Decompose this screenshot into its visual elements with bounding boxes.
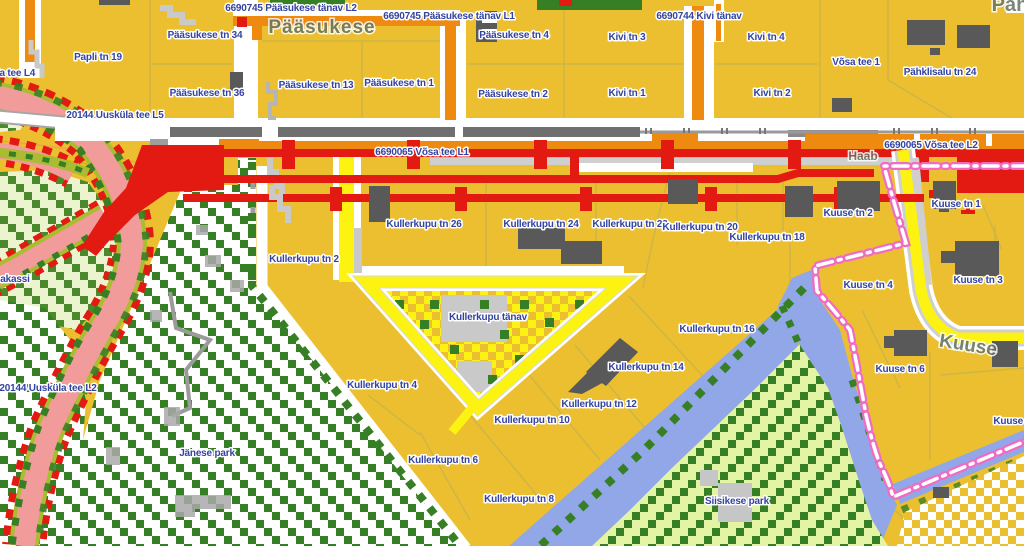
svg-text:Kullerkupu tn 26: Kullerkupu tn 26 [386, 219, 462, 230]
svg-text:6690065 Võsa tee L2: 6690065 Võsa tee L2 [884, 140, 978, 151]
svg-text:akassi: akassi [0, 274, 30, 285]
svg-text:Võsa tee 1: Võsa tee 1 [832, 57, 880, 68]
svg-text:Kullerkupu tn 16: Kullerkupu tn 16 [679, 324, 755, 335]
svg-text:Pääsukese tn 1: Pääsukese tn 1 [364, 78, 434, 89]
svg-text:Kuuse tn 1: Kuuse tn 1 [931, 199, 981, 210]
svg-text:Pääsukese tn 4: Pääsukese tn 4 [479, 30, 549, 41]
svg-text:Kivi tn 1: Kivi tn 1 [608, 88, 646, 99]
svg-text:Päh: Päh [992, 0, 1024, 16]
svg-text:Pääsukese tn 34: Pääsukese tn 34 [168, 30, 243, 41]
svg-text:Pääsukese: Pääsukese [268, 17, 375, 38]
svg-text:Pähklisalu tn 24: Pähklisalu tn 24 [904, 67, 977, 78]
svg-text:Kullerkupu tn 20: Kullerkupu tn 20 [662, 222, 738, 233]
svg-text:Kullerkupu tn 4: Kullerkupu tn 4 [347, 380, 417, 391]
svg-text:Kivi tn 3: Kivi tn 3 [608, 32, 646, 43]
svg-text:Kivi tn 4: Kivi tn 4 [747, 32, 785, 43]
svg-text:Siisikese park: Siisikese park [705, 496, 770, 507]
svg-text:Kullerkupu tn 12: Kullerkupu tn 12 [561, 399, 637, 410]
svg-text:Pääsukese tn 2: Pääsukese tn 2 [478, 89, 548, 100]
svg-text:Kuuse tn 4: Kuuse tn 4 [843, 280, 893, 291]
svg-text:Kuuse tn: Kuuse tn [993, 416, 1024, 427]
svg-text:Kullerkupu tn 18: Kullerkupu tn 18 [729, 232, 805, 243]
svg-text:Kullerkupu tn 8: Kullerkupu tn 8 [484, 494, 554, 505]
svg-text:6690745 Pääsukese tänav L2: 6690745 Pääsukese tänav L2 [225, 3, 357, 14]
svg-text:20144 Uusküla tee L5: 20144 Uusküla tee L5 [66, 110, 164, 121]
svg-text:Kuuse tn 3: Kuuse tn 3 [953, 275, 1003, 286]
svg-text:Kullerkupu tn 2: Kullerkupu tn 2 [269, 254, 339, 265]
svg-text:la tee L4: la tee L4 [0, 68, 36, 79]
svg-text:Kullerkupu tänav: Kullerkupu tänav [449, 312, 528, 323]
svg-text:20144 Uusküla tee L2: 20144 Uusküla tee L2 [0, 383, 97, 394]
svg-text:Kullerkupu tn 14: Kullerkupu tn 14 [608, 362, 684, 373]
svg-text:6690744 Kivi tänav: 6690744 Kivi tänav [656, 11, 742, 22]
svg-text:Kullerkupu tn 10: Kullerkupu tn 10 [494, 415, 570, 426]
svg-text:6690745 Pääsukese tänav L1: 6690745 Pääsukese tänav L1 [383, 11, 515, 22]
svg-text:Pääsukese tn 36: Pääsukese tn 36 [170, 88, 245, 99]
svg-text:Haab: Haab [848, 149, 877, 163]
svg-text:Kuuse tn 2: Kuuse tn 2 [823, 208, 873, 219]
svg-text:Kullerkupu tn 24: Kullerkupu tn 24 [503, 219, 579, 230]
svg-text:Kullerkupu tn 22: Kullerkupu tn 22 [592, 219, 668, 230]
svg-text:Kuuse tn 6: Kuuse tn 6 [875, 364, 925, 375]
svg-text:Jänese park: Jänese park [179, 448, 235, 459]
svg-text:Papli tn 19: Papli tn 19 [74, 52, 122, 63]
svg-text:Kivi tn 2: Kivi tn 2 [753, 88, 791, 99]
svg-text:Kullerkupu tn 6: Kullerkupu tn 6 [408, 455, 478, 466]
svg-text:Pääsukese tn 13: Pääsukese tn 13 [279, 80, 354, 91]
svg-text:6690065 Võsa tee L1: 6690065 Võsa tee L1 [375, 147, 469, 158]
